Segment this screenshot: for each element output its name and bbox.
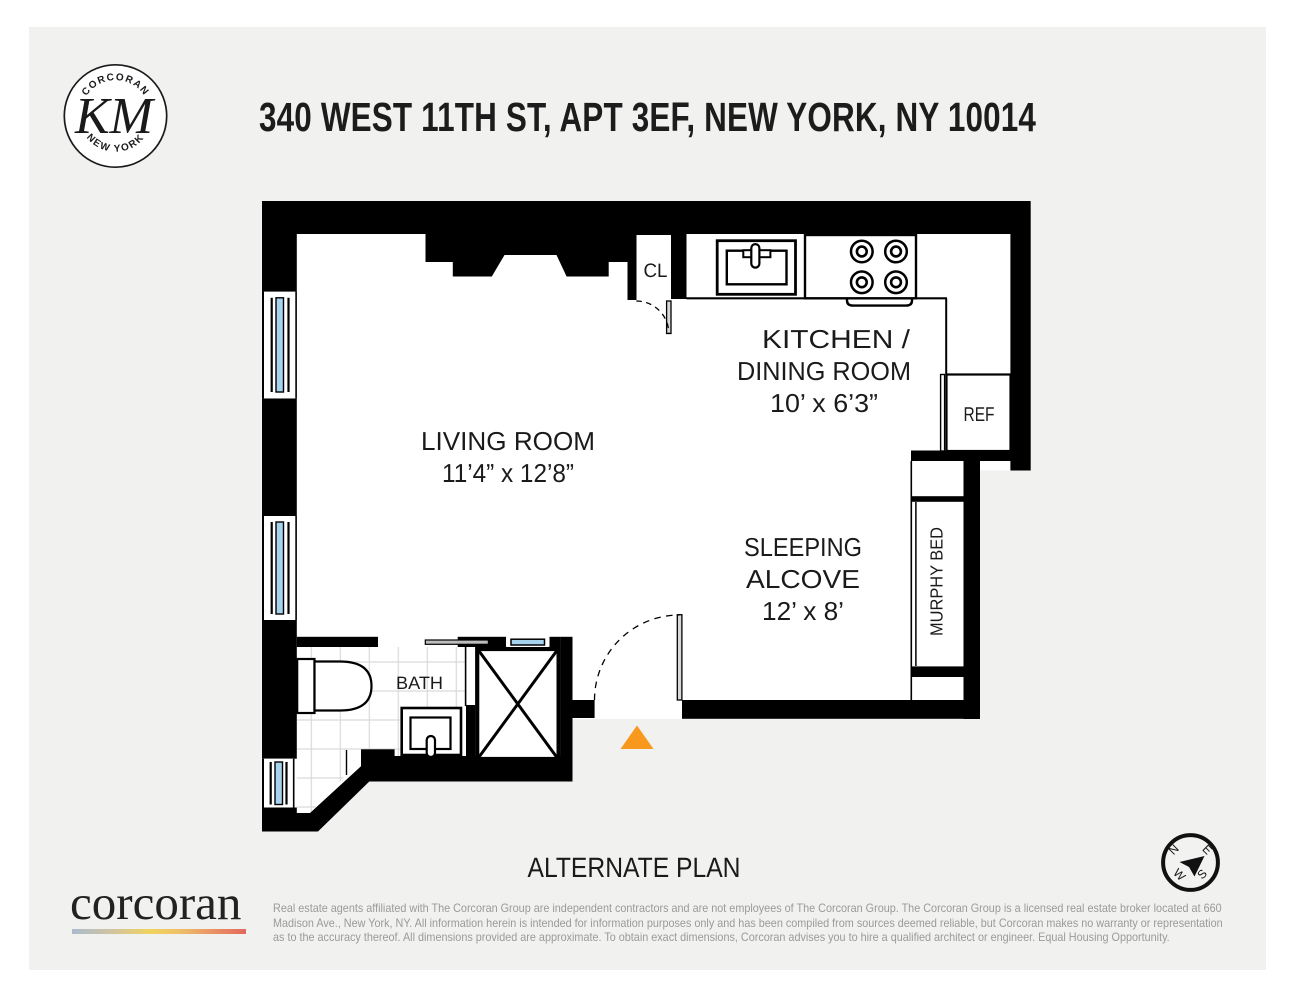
svg-text:12’ x 8’: 12’ x 8’ bbox=[762, 596, 844, 626]
svg-text:10’ x 6’3”: 10’ x 6’3” bbox=[770, 388, 878, 418]
svg-text:KITCHEN /: KITCHEN / bbox=[762, 324, 911, 354]
svg-text:REF: REF bbox=[964, 404, 995, 426]
svg-text:11’4” x 12’8”: 11’4” x 12’8” bbox=[442, 458, 574, 488]
svg-text:MURPHY BED: MURPHY BED bbox=[927, 527, 947, 636]
svg-text:SLEEPING: SLEEPING bbox=[744, 532, 862, 562]
svg-text:LIVING ROOM: LIVING ROOM bbox=[421, 426, 595, 456]
svg-text:DINING ROOM: DINING ROOM bbox=[737, 356, 911, 386]
svg-text:BATH: BATH bbox=[396, 673, 443, 693]
svg-text:CL: CL bbox=[644, 260, 668, 282]
svg-text:ALCOVE: ALCOVE bbox=[746, 564, 860, 594]
svg-text:ALTERNATE PLAN: ALTERNATE PLAN bbox=[528, 852, 741, 883]
